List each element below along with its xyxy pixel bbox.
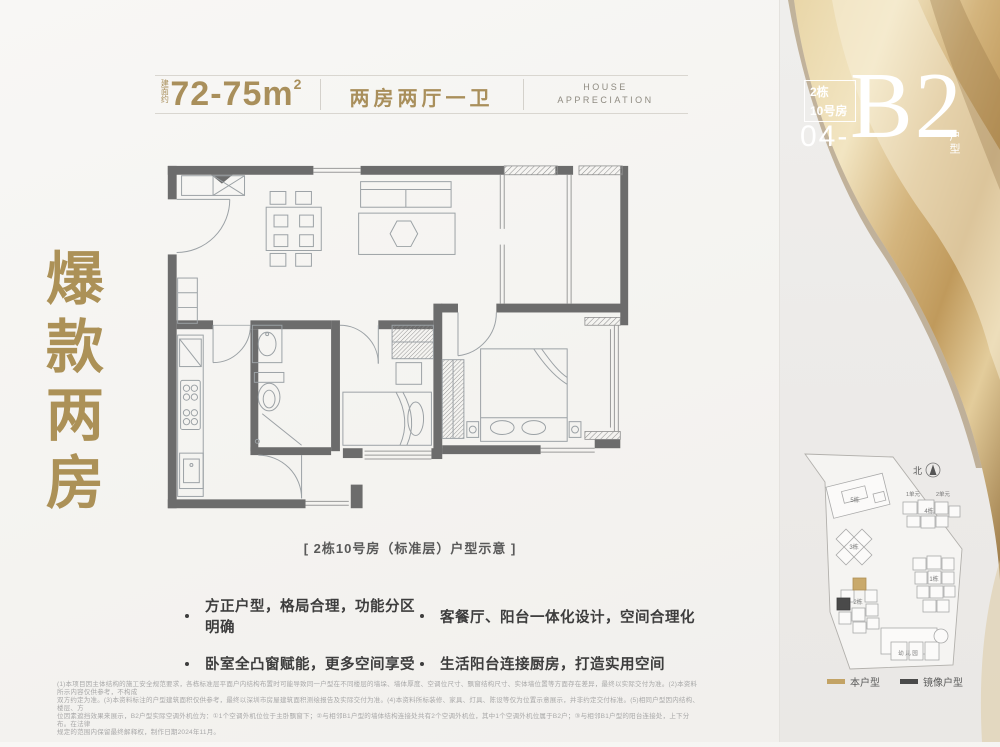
highlight-item: 方正户型，格局合理，功能分区明确 — [185, 595, 420, 637]
disclaimer-line: (1)本项目因主体结构的施工安全规范要求，各栋标准层平面户内结构布置时可能导致同… — [57, 681, 702, 697]
area-superscript: 2 — [294, 76, 302, 92]
tagline-en: HOUSE APPRECIATION — [523, 81, 688, 106]
vertical-slogan: 爆款两房 — [38, 248, 99, 520]
north-indicator: 北 — [913, 463, 940, 477]
unit-badge-box: 2栋 10号房 — [804, 80, 856, 122]
layout-label: 两房两厅一卫 — [320, 82, 523, 111]
svg-text:1单元: 1单元 — [906, 490, 921, 498]
svg-text:3栋: 3栋 — [849, 543, 858, 551]
bullet-dot-icon — [185, 662, 189, 666]
svg-text:5栋: 5栋 — [850, 496, 859, 504]
svg-text:北: 北 — [913, 466, 922, 476]
badge-building: 2栋 — [810, 83, 855, 102]
highlight-text: 卧室全凸窗赋能，更多空间享受 — [205, 653, 415, 674]
tagline-line2: APPRECIATION — [523, 94, 688, 107]
svg-text:2栋: 2栋 — [853, 598, 862, 606]
floorplan-svg — [156, 160, 638, 522]
highlight-item: 生活阳台连接厨房，打造实用空间 — [420, 653, 745, 674]
unit-mirror — [837, 598, 850, 610]
highlights-list: 方正户型，格局合理，功能分区明确 客餐厅、阳台一体化设计，空间合理化 卧室全凸窗… — [185, 595, 745, 674]
unit-self — [853, 578, 866, 590]
area-block: 建面约 72-75m 2 — [160, 74, 301, 114]
legend-swatch-self — [827, 679, 845, 684]
badge-suffix: 户型 — [946, 130, 962, 156]
disclaimer-line: 位因素遮挡效果来展示，B2户型实际空调外机位为：①1个空调外机位位于主卧飘窗下；… — [57, 713, 702, 729]
svg-text:4栋: 4栋 — [924, 507, 933, 515]
highlight-text: 方正户型，格局合理，功能分区明确 — [205, 595, 420, 637]
legend-item-self: 本户型 — [827, 674, 880, 689]
hatched-windows — [504, 166, 622, 439]
site-map-svg: 北 5栋 1单元 2单元 4栋 — [795, 432, 985, 672]
site-map-legend: 本户型 镜像户型 — [805, 674, 985, 689]
floorplan-caption: [ 2栋10号房（标准层）户型示意 ] — [180, 538, 640, 557]
svg-text:幼 儿 园: 幼 儿 园 — [898, 649, 918, 657]
badge-room: 10号房 — [810, 102, 855, 121]
highlight-text: 客餐厅、阳台一体化设计，空间合理化 — [440, 606, 695, 627]
legend-swatch-mirror — [900, 679, 918, 684]
area-prefix-label: 建面约 — [160, 79, 168, 109]
badge-number: 04- — [800, 120, 849, 154]
bullet-dot-icon — [420, 662, 424, 666]
legend-label-mirror: 镜像户型 — [923, 674, 963, 689]
tagline-line1: HOUSE — [523, 81, 688, 94]
disclaimer-line: 规定的范围内保留最终解释权，制作日期2024年11月。 — [57, 729, 702, 737]
highlight-item: 客餐厅、阳台一体化设计，空间合理化 — [420, 595, 745, 637]
bullet-dot-icon — [185, 614, 189, 618]
disclaimer-line: 双方约定为准。(3)本资料标注的户型建筑面积仅供参考，最终以深圳市房屋建筑面积测… — [57, 697, 702, 713]
legend-item-mirror: 镜像户型 — [900, 674, 963, 689]
bullet-dot-icon — [420, 614, 424, 618]
disclaimer-text: (1)本项目因主体结构的施工安全规范要求，各栋标准层平面户内结构布置时可能导致同… — [57, 681, 702, 737]
svg-text:2单元: 2单元 — [936, 490, 951, 498]
highlight-text: 生活阳台连接厨房，打造实用空间 — [440, 653, 665, 674]
highlight-item: 卧室全凸窗赋能，更多空间享受 — [185, 653, 420, 674]
area-value: 72-75m — [170, 75, 293, 114]
legend-label-self: 本户型 — [850, 674, 880, 689]
svg-text:1栋: 1栋 — [929, 575, 938, 583]
